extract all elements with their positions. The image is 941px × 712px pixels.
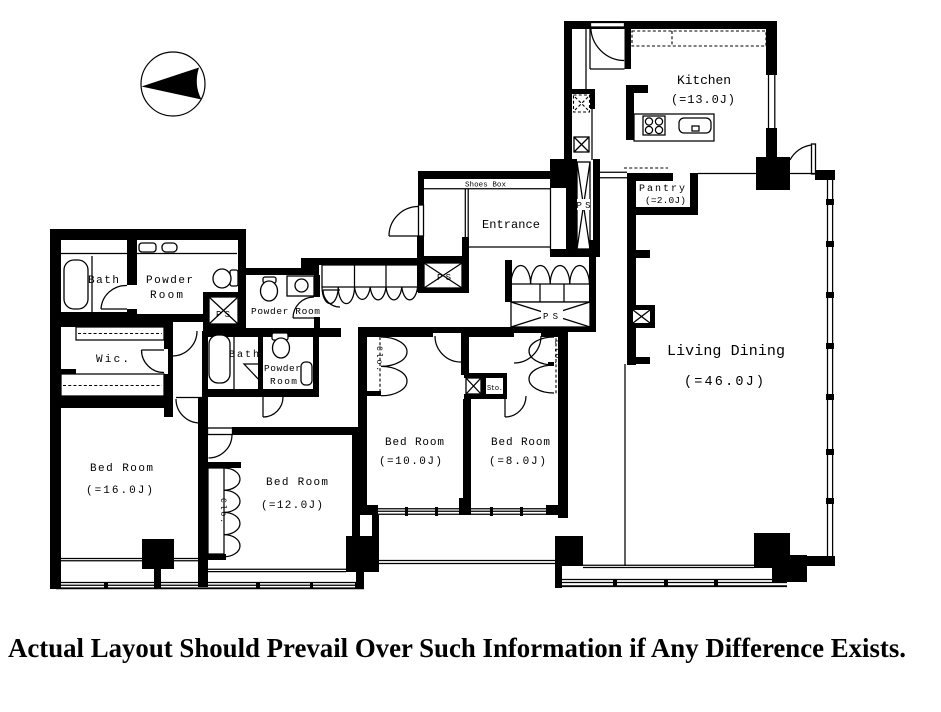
svg-text:Bath: Bath — [88, 275, 119, 287]
svg-text:Clo.: Clo. — [374, 346, 383, 371]
svg-text:(=8.0J): (=8.0J) — [489, 456, 546, 468]
svg-text:Entrance: Entrance — [482, 218, 540, 232]
svg-text:Bed Room: Bed Room — [266, 477, 328, 489]
svg-text:Actual Layout Should Prevail O: Actual Layout Should Prevail Over Such I… — [8, 633, 906, 663]
svg-text:Living Dining: Living Dining — [667, 343, 785, 360]
svg-text:(=2.0J): (=2.0J) — [645, 195, 686, 206]
svg-text:Kitchen: Kitchen — [677, 73, 731, 88]
svg-text:Sto.: Sto. — [487, 385, 503, 393]
svg-text:Clo.: Clo. — [218, 498, 227, 523]
svg-text:Powder Room: Powder Room — [251, 306, 320, 317]
svg-text:Bath: Bath — [229, 349, 259, 361]
svg-text:Shoes Box: Shoes Box — [465, 182, 506, 190]
svg-text:Bed Room: Bed Room — [385, 437, 444, 449]
svg-text:Room: Room — [270, 376, 297, 387]
svg-text:Room: Room — [150, 290, 183, 302]
svg-text:Bed Room: Bed Room — [491, 437, 550, 449]
svg-text:(=10.0J): (=10.0J) — [379, 456, 442, 468]
svg-text:Powder: Powder — [264, 363, 301, 374]
svg-text:Bed Room: Bed Room — [90, 463, 153, 475]
svg-text:(=13.0J): (=13.0J) — [671, 93, 735, 107]
svg-text:(=12.0J): (=12.0J) — [261, 500, 323, 512]
